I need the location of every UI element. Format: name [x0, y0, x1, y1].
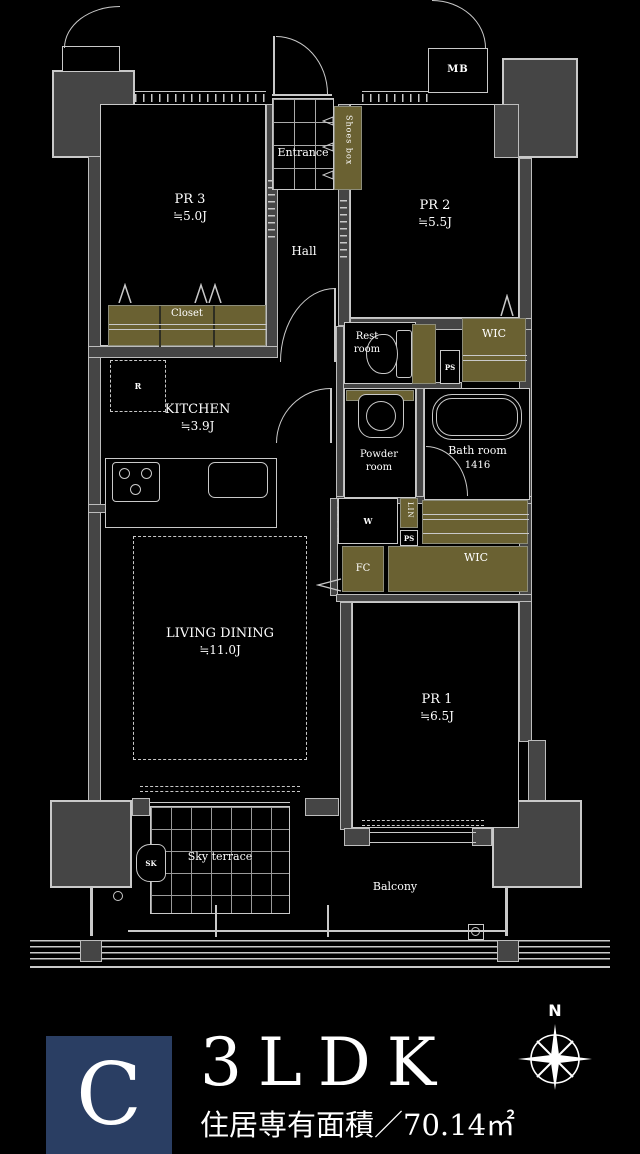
pillar-bottom-left [50, 800, 132, 888]
hall-label: Hall [278, 244, 330, 260]
closet: Closet [108, 305, 266, 346]
pr1-label: PR 1 ≒6.5J [377, 692, 497, 726]
kitchen-door-arc [276, 388, 331, 443]
wall-hall-sanitary [336, 326, 344, 498]
balcony-post-right [505, 888, 508, 936]
wic-lower-label: WIC [423, 551, 529, 565]
balcony-rail-band [30, 940, 610, 962]
rest-room-cabinet [412, 324, 436, 384]
drain-left [113, 891, 123, 901]
washer-label: W [339, 516, 397, 526]
pr2-name: PR 2 [420, 198, 451, 213]
entrance-door-arc [276, 36, 328, 94]
stove [112, 462, 160, 502]
wic-shelf-rail-1 [423, 514, 529, 515]
rest-room-label: Rest room [344, 330, 390, 356]
ground-line [30, 966, 610, 968]
rest-line1: Rest [356, 331, 379, 342]
window-pr3-top [135, 91, 266, 105]
wic-upper-label: WIC [463, 327, 525, 341]
living-name: LIVING DINING [166, 626, 274, 641]
powder-room-label: Powder room [344, 448, 414, 474]
pr3-label: PR 3 ≒5.0J [130, 192, 250, 226]
meter-box: MB [428, 48, 488, 93]
wic-shelf-rail-3 [423, 533, 529, 534]
balcony-post-mid-1 [215, 905, 217, 937]
pr3-size: ≒5.0J [173, 209, 207, 223]
rail-post-right [497, 940, 519, 962]
unit-type-letter: C [76, 1045, 142, 1145]
wic-upper-rail-2 [463, 360, 527, 361]
folding-door-icon [208, 283, 222, 303]
folding-door-icon [194, 283, 208, 303]
pr2-corner-notch [494, 104, 519, 158]
shoes-box: Shoes box [334, 106, 362, 190]
kitchen-label: KITCHEN ≒3.9J [135, 402, 260, 436]
pr1-size: ≒6.5J [420, 709, 454, 723]
wic-upper: WIC [462, 318, 526, 382]
pr3-name: PR 3 [175, 192, 206, 207]
living-label: LIVING DINING ≒11.0J [140, 626, 300, 660]
washer-space: W [338, 498, 398, 544]
rail-post-left [80, 940, 102, 962]
balcony-label: Balcony [350, 880, 440, 894]
pipe-space-lower: PS [400, 530, 418, 546]
washbasin [358, 394, 404, 438]
wall-closet-bottom [88, 346, 278, 358]
bathtub-inner [436, 398, 518, 436]
powder-line1: Powder [360, 449, 398, 460]
balcony-handrail [128, 930, 506, 932]
bath-size: 1416 [465, 460, 490, 471]
stub-living-left [132, 798, 150, 816]
area-label: 住居専有面積／70.14㎡ [200, 1110, 600, 1142]
powder-line2: room [366, 462, 392, 473]
slop-sink-label: SK [137, 859, 165, 868]
window-pr2-top [362, 91, 428, 105]
folding-door-icon [500, 294, 514, 316]
track-pr2-wall [340, 200, 347, 262]
meter-box-door-arc [432, 0, 486, 48]
fc-label: FC [343, 562, 383, 575]
wall-right-leg [528, 740, 546, 802]
closet-label: Closet [109, 307, 265, 320]
meter-box-label: MB [429, 63, 487, 76]
kitchen-size: ≒3.9J [181, 419, 215, 433]
arrow-left-icon [322, 116, 334, 126]
wall-powder-bath [416, 388, 424, 500]
wic-shelf-rail-2 [423, 519, 529, 520]
arrow-left-icon [322, 170, 334, 180]
pr2-label: PR 2 ≒5.5J [375, 198, 495, 232]
pr2-size: ≒5.5J [418, 215, 452, 229]
rest-line2: room [354, 344, 380, 355]
sky-terrace-label: Sky terrace [160, 850, 280, 864]
washbasin-bowl [366, 401, 396, 431]
window-pr1-balcony [370, 832, 476, 843]
entrance-door-leaf [273, 36, 275, 94]
arrow-left-icon [322, 142, 334, 152]
bathtub [432, 394, 522, 440]
pipe-space-upper: PS [440, 350, 460, 384]
slop-sink: SK [136, 844, 166, 882]
closet-rail-1 [109, 324, 267, 325]
wall-under-wic [336, 594, 532, 602]
bath-name: Bath room [448, 444, 507, 457]
burner-icon [141, 468, 152, 479]
pipe-space-lower-label: PS [401, 534, 417, 543]
balcony-post-left [90, 888, 93, 936]
wic-upper-rail-1 [463, 355, 527, 356]
stub-living-right [305, 798, 339, 816]
wic-lower-upper-shelf [422, 500, 528, 544]
pipe-space-upper-label: PS [441, 363, 459, 372]
burner-icon [119, 468, 130, 479]
stub-pr1-left [344, 828, 370, 846]
compass-north-label: N [548, 1001, 561, 1020]
living-size: ≒11.0J [199, 643, 241, 657]
floorplan-page: MB PR 3 ≒5.0J Closet PR 2 ≒5.5J E [0, 0, 640, 1154]
unit-type-badge: C [46, 1036, 172, 1154]
fc-closet: FC [342, 546, 384, 592]
closet-rail-2 [109, 329, 267, 330]
door-arc-top-left [64, 6, 120, 48]
compass-icon: N [510, 998, 600, 1098]
balcony-post-mid-2 [327, 905, 329, 937]
arrow-left-icon [316, 578, 342, 592]
entry-window-top-left [62, 46, 120, 72]
linen-cabinet: LIN [400, 498, 418, 528]
entrance-threshold [272, 94, 332, 96]
kitchen-sink [208, 462, 268, 498]
pr1-name: PR 1 [422, 692, 453, 707]
shoes-box-label: Shoes box [343, 115, 353, 165]
toilet-tank [396, 330, 412, 378]
drain-right [468, 924, 484, 940]
kitchen-name: KITCHEN [165, 402, 231, 417]
pr2-door-arc [280, 288, 335, 362]
layout-title: 3LDK [200, 1030, 480, 1096]
burner-icon [130, 484, 141, 495]
linen-label: LIN [405, 502, 414, 519]
folding-door-icon [118, 283, 132, 303]
window-hatch-living [140, 786, 300, 792]
window-hatch-pr1 [362, 820, 484, 826]
wic-lower: WIC [388, 546, 528, 592]
refrigerator-label: R [111, 381, 165, 391]
wall-living-pr1 [340, 602, 352, 830]
